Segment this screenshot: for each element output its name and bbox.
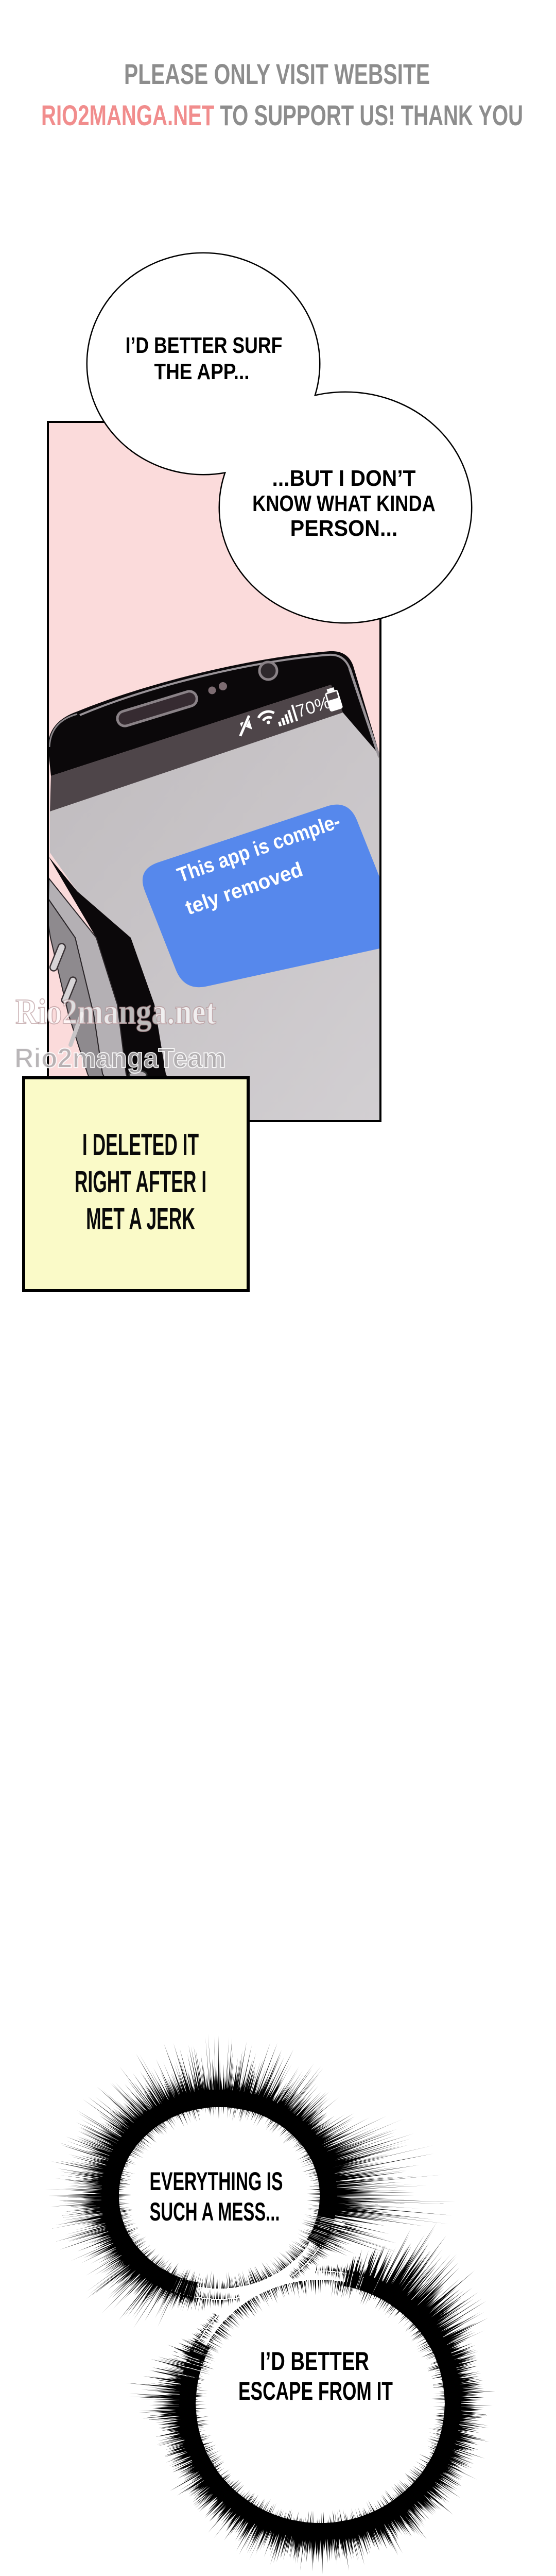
svg-text:PERSON...: PERSON... (290, 516, 398, 541)
svg-text:ESCAPE FROM IT: ESCAPE FROM IT (238, 2377, 393, 2405)
svg-text:...BUT I DON’T: ...BUT I DON’T (272, 466, 416, 491)
svg-text:THE APP...: THE APP... (154, 359, 249, 384)
svg-text:I’D BETTER: I’D BETTER (260, 2347, 369, 2376)
svg-text:I’D BETTER SURF: I’D BETTER SURF (126, 333, 283, 358)
svg-text:SUCH A MESS...: SUCH A MESS... (149, 2197, 280, 2226)
svg-text:KNOW WHAT KINDA: KNOW WHAT KINDA (252, 491, 436, 516)
svg-text:EVERYTHING IS: EVERYTHING IS (150, 2167, 283, 2196)
